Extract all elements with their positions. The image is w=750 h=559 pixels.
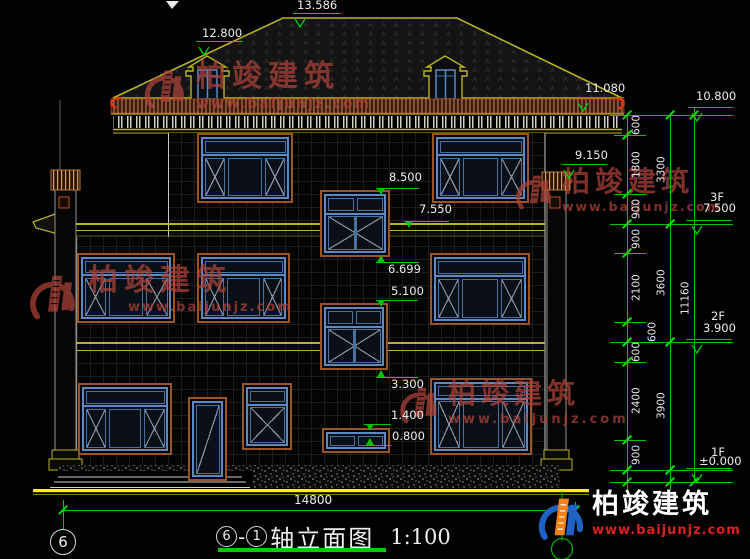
window-pane <box>330 436 355 446</box>
elevation-label: 3.300 <box>391 379 424 391</box>
axis-bubble-label: 6 <box>50 529 76 555</box>
casement-row <box>83 276 169 317</box>
transom-row <box>326 309 382 328</box>
window-mullion <box>354 217 357 248</box>
elevation-label-line <box>376 262 419 263</box>
chain-dimension-value: 11160 <box>679 115 692 482</box>
window-pane <box>263 278 283 316</box>
entry-door <box>188 397 227 481</box>
window-pane <box>146 278 167 316</box>
window-frame <box>201 137 289 199</box>
window-pane <box>109 409 142 448</box>
casement-row <box>438 156 523 197</box>
window-frame <box>81 257 171 319</box>
elevation-marker-down <box>366 424 374 431</box>
elevation-marker-down <box>405 221 413 228</box>
transom-row <box>84 389 166 407</box>
window-pane <box>144 409 164 448</box>
chain-dimension-value: 1800 <box>630 135 643 194</box>
window-pane <box>196 405 220 474</box>
transom-row <box>248 389 286 406</box>
title-scale: 1:100 <box>390 525 451 549</box>
window-pane <box>250 407 285 443</box>
window <box>77 253 175 323</box>
window-frame <box>324 194 386 253</box>
window-pane <box>440 141 522 153</box>
window-frame <box>246 387 288 446</box>
window-frame <box>434 257 526 321</box>
window-pane <box>328 329 381 362</box>
casement-row <box>436 277 524 319</box>
transom-row <box>203 259 284 276</box>
transom-row <box>436 259 524 277</box>
floor-boundary-line <box>610 224 733 225</box>
window-pane <box>356 311 381 325</box>
window-frame <box>201 257 286 319</box>
chain-dimension-value: 3300 <box>655 115 668 224</box>
window <box>430 378 532 455</box>
elevation-marker-up <box>366 438 374 445</box>
window-frame <box>434 382 528 451</box>
elevation-label: 0.800 <box>392 431 425 443</box>
transom-row <box>326 196 384 215</box>
window-pane <box>205 158 226 196</box>
window-frame <box>82 387 168 451</box>
cad-elevation-drawing: 柏竣建筑 www.baijunjz.com 柏竣建筑 www.baijunjz.… <box>0 0 750 559</box>
casement-row <box>84 407 166 449</box>
level-value: ±0.000 <box>699 456 742 468</box>
window-frame <box>326 432 386 449</box>
window-pane <box>85 278 106 316</box>
level-value: 10.800 <box>696 91 736 103</box>
floor-boundary-line <box>610 115 733 116</box>
elevation-marker-up <box>377 370 385 377</box>
transom-row <box>203 139 287 156</box>
window-pane <box>86 391 165 404</box>
axis-bubble: 6 <box>50 529 76 555</box>
window-pane <box>438 401 460 447</box>
chain-dimension-value: 2400 <box>630 362 643 440</box>
window-pane <box>502 401 524 447</box>
chain-dimension-value: 3900 <box>655 342 668 470</box>
window-pane <box>501 279 523 318</box>
window-pane <box>205 141 286 153</box>
transom-row <box>83 259 169 276</box>
window-pane <box>227 278 259 316</box>
window-pane <box>463 158 497 196</box>
window <box>320 303 388 370</box>
window-pane <box>462 279 498 318</box>
segment-boundary-line <box>614 322 646 323</box>
casement-row <box>436 400 526 449</box>
chain-dimension-value: 2100 <box>630 253 643 322</box>
window-frame <box>192 401 223 477</box>
window <box>197 133 293 203</box>
window <box>197 253 290 323</box>
company-logo: 柏竣建筑 www.baijunjz.com <box>534 491 741 549</box>
window-pane <box>228 158 262 196</box>
window <box>322 428 390 453</box>
title-axis-start: 6 <box>216 526 237 547</box>
title-separator: - <box>238 525 245 549</box>
level-marker-open <box>691 220 703 239</box>
chain-dimension-value: 600 <box>630 115 643 135</box>
casement-row <box>326 328 382 364</box>
eave-fascia <box>111 98 624 133</box>
window-pane <box>205 261 283 273</box>
window-pane <box>328 216 383 249</box>
elevation-marker-open <box>294 13 306 32</box>
window <box>242 383 292 450</box>
window-pane <box>438 386 525 397</box>
window-frame <box>324 307 384 366</box>
transom-row <box>436 384 526 400</box>
casement-row <box>326 215 384 251</box>
elevation-marker-down <box>377 300 385 307</box>
hipped-roof <box>113 18 622 98</box>
window-pane <box>86 409 106 448</box>
elevation-marker-open <box>198 41 210 60</box>
elevation-label: 8.500 <box>389 172 422 184</box>
title-axis-end: 1 <box>246 526 267 547</box>
chain-dimension-value: 3600 <box>655 224 668 342</box>
transom-row <box>438 139 523 156</box>
window-pane <box>438 279 460 318</box>
elevation-label: 7.550 <box>419 204 452 216</box>
elevation-label: 9.150 <box>575 150 608 162</box>
company-logo-icon <box>534 491 586 549</box>
elevation-label: 1.400 <box>391 410 424 422</box>
window-pane <box>109 278 144 316</box>
window-pane <box>328 198 354 212</box>
window-pane <box>328 311 353 325</box>
elevation-marker-open <box>577 97 589 116</box>
elevation-label: 5.100 <box>391 286 424 298</box>
logo-company: 柏竣建筑 <box>592 491 741 518</box>
chain-dimension-value: 600 <box>630 342 643 362</box>
casement-row <box>203 276 284 317</box>
window-pane <box>463 401 500 447</box>
dimension-chain-line <box>627 115 628 490</box>
window <box>432 133 529 203</box>
window-pane <box>265 158 286 196</box>
window <box>430 253 530 325</box>
dimension-line <box>63 510 575 511</box>
pilaster-right <box>541 172 572 470</box>
elevation-marker-down <box>377 188 385 195</box>
window-pane <box>250 391 285 403</box>
elevation-marker-open <box>563 164 575 183</box>
dimension-chain-line <box>694 107 695 482</box>
floor-boundary-line <box>610 342 733 343</box>
ground <box>33 465 589 495</box>
casement-row <box>203 156 287 197</box>
window-mullion <box>353 330 356 361</box>
window-frame <box>436 137 525 199</box>
window-pane <box>438 261 523 274</box>
elevation-label: 12.800 <box>202 28 242 40</box>
window <box>78 383 172 455</box>
elevation-label-line <box>376 377 418 378</box>
window-pane <box>357 198 383 212</box>
casement-row <box>248 406 286 445</box>
dimension-extension-line <box>63 500 64 529</box>
elevation-label-line <box>364 445 391 446</box>
floor-boundary-line <box>610 482 733 483</box>
elevation-label: 13.586 <box>297 0 337 12</box>
window <box>320 190 390 257</box>
window-pane <box>85 261 168 273</box>
window-pane <box>205 278 225 316</box>
window-pane <box>501 158 522 196</box>
elevation-marker-up <box>377 255 385 262</box>
floor-boundary-line <box>610 470 733 471</box>
level-value: 7.500 <box>703 203 736 215</box>
casement-row <box>194 403 221 475</box>
window-pane <box>440 158 461 196</box>
overall-width-dimension: 14800 <box>294 494 332 506</box>
logo-website: www.baijunjz.com <box>592 524 741 537</box>
title-underline <box>218 548 386 552</box>
dimension-chain-line <box>670 115 671 490</box>
level-value: 3.900 <box>703 323 736 335</box>
elevation-label: 11.080 <box>585 83 625 95</box>
elevation-label: 6.699 <box>388 264 421 276</box>
